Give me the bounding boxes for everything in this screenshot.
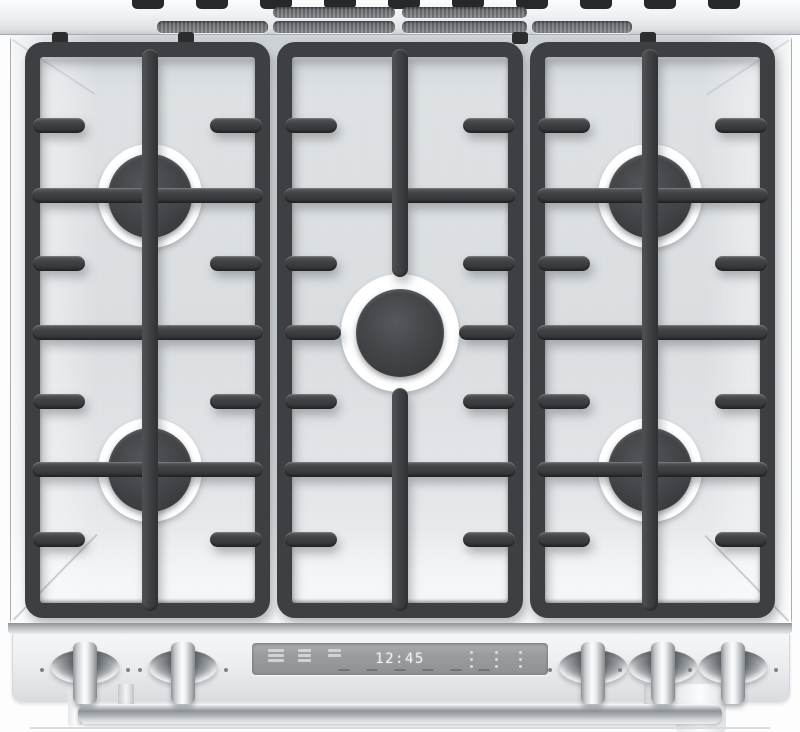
- grate-bar: [715, 118, 767, 133]
- door-edge: [30, 727, 770, 729]
- grate-bar: [715, 256, 767, 271]
- knob-handle: [721, 642, 745, 704]
- backguard-vent-strip: [0, 0, 800, 35]
- touch-dot: [495, 665, 498, 668]
- grate-bar: [285, 325, 341, 340]
- burner-knob-3: [555, 638, 631, 706]
- knob-tick: [126, 668, 130, 672]
- grate-bar: [392, 388, 408, 611]
- vent-slot: [532, 21, 632, 33]
- hinge-tab: [132, 0, 164, 9]
- hinge-tab: [644, 0, 676, 9]
- grate-bar: [538, 256, 590, 271]
- burner-knob-2: [145, 638, 221, 706]
- vent-slot: [402, 7, 527, 18]
- grate-bar: [33, 118, 85, 133]
- knob-tick: [548, 668, 552, 672]
- knob-handle: [73, 642, 97, 704]
- touch-mark: [338, 669, 350, 671]
- grate-bar: [33, 532, 85, 547]
- grate-bar: [33, 394, 85, 409]
- vent-slot: [157, 21, 268, 33]
- touch-dot: [519, 665, 522, 668]
- grate-bar: [642, 49, 658, 611]
- grate-bar: [463, 532, 515, 547]
- vent-slot: [402, 21, 527, 33]
- burner-knob-4: [625, 638, 701, 706]
- touch-dot: [519, 651, 522, 654]
- gas-range-product-photo: 12:45: [0, 0, 800, 732]
- grate-bar: [210, 532, 262, 547]
- touch-dot: [495, 651, 498, 654]
- hinge-tab: [580, 0, 612, 9]
- grate-bar: [715, 532, 767, 547]
- burner-knob-5: [695, 638, 771, 706]
- grate-bar: [285, 394, 337, 409]
- grate-bar: [142, 49, 158, 611]
- touch-dot: [519, 658, 522, 661]
- hinge-tab: [708, 0, 740, 9]
- grate-bar: [538, 118, 590, 133]
- control-display: 12:45: [252, 643, 548, 675]
- touch-mark: [478, 669, 490, 671]
- grate-bar: [210, 394, 262, 409]
- knob-handle: [581, 642, 605, 704]
- touch-dot: [470, 665, 473, 668]
- grate-bar: [285, 256, 337, 271]
- touch-mark: [366, 669, 378, 671]
- grate-bar: [538, 394, 590, 409]
- vent-slot: [273, 21, 395, 33]
- grate-bar: [538, 532, 590, 547]
- knob-tick: [688, 668, 692, 672]
- touch-dot: [495, 658, 498, 661]
- touch-mark: [394, 669, 406, 671]
- grate-bar: [285, 118, 337, 133]
- clock-display: 12:45: [252, 651, 548, 667]
- grate-bar: [285, 532, 337, 547]
- oven-door-handle: [78, 704, 722, 724]
- vent-slot: [273, 7, 395, 18]
- grate-bar: [33, 256, 85, 271]
- burner-knob-1: [47, 638, 123, 706]
- grate-bar: [463, 394, 515, 409]
- touch-dot: [470, 651, 473, 654]
- touch-mark: [450, 669, 462, 671]
- knob-handle: [651, 642, 675, 704]
- touch-dot: [470, 658, 473, 661]
- knob-tick: [224, 668, 228, 672]
- knob-tick: [40, 668, 44, 672]
- grate-bar: [463, 256, 515, 271]
- grate-bar: [392, 49, 408, 277]
- grate-bar: [459, 325, 515, 340]
- grate-bar: [463, 118, 515, 133]
- grate-bar: [210, 256, 262, 271]
- cooktop-front-rim: [8, 623, 792, 634]
- knob-handle: [171, 642, 195, 704]
- grate-bar: [715, 394, 767, 409]
- knob-tick: [138, 668, 142, 672]
- grate-panel-right: [530, 42, 775, 618]
- hinge-tab: [196, 0, 228, 9]
- grate-panel-center: [277, 42, 523, 618]
- knob-tick: [774, 668, 778, 672]
- grate-panel-left: [25, 42, 270, 618]
- touch-mark: [422, 669, 434, 671]
- knob-tick: [618, 668, 622, 672]
- grate-bar: [210, 118, 262, 133]
